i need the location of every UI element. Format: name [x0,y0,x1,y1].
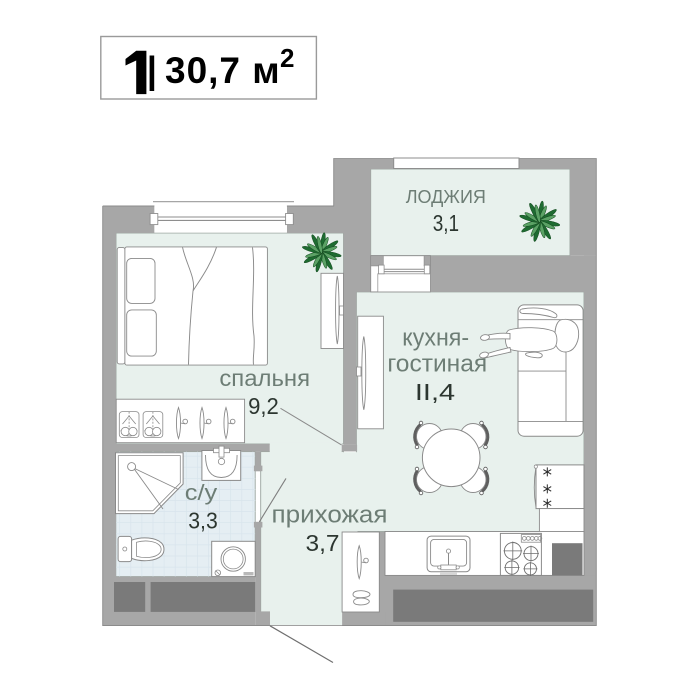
svg-text:3,3: 3,3 [188,508,218,534]
svg-text:3,7: 3,7 [306,530,340,556]
svg-text:спальня: спальня [219,365,310,391]
svg-text:II,4: II,4 [415,379,455,405]
svg-text:прихожая: прихожая [272,501,388,528]
svg-text:2: 2 [280,43,294,73]
svg-text:ЛОДЖИЯ: ЛОДЖИЯ [406,186,486,207]
svg-text:с/у: с/у [185,480,218,505]
svg-text:кухня-: кухня- [402,324,469,351]
svg-text:30,7 м: 30,7 м [165,50,281,91]
svg-text:9,2: 9,2 [248,393,279,419]
svg-text:3,1: 3,1 [433,210,459,236]
svg-text:гостиная: гостиная [387,350,487,377]
